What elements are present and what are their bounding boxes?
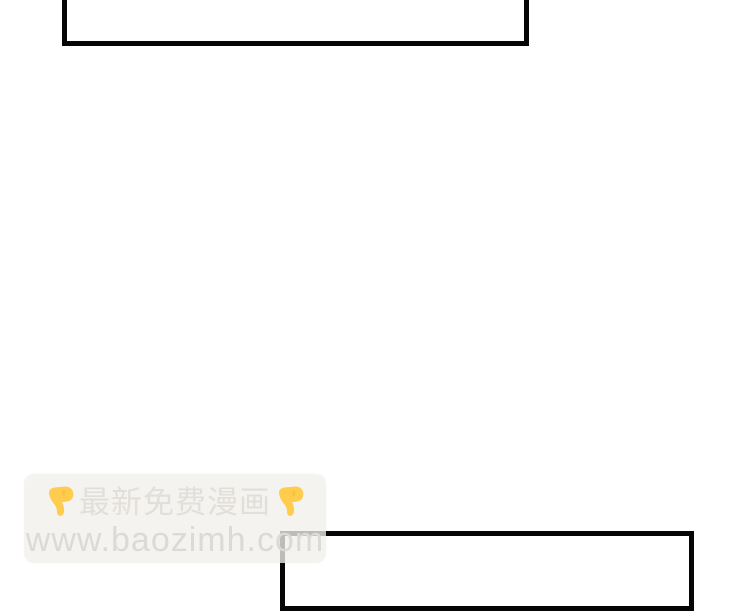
watermark-overlay: 最新免费漫画 www.baozimh.com [24,474,326,563]
watermark-url: www.baozimh.com [24,523,326,557]
watermark-line1: 最新免费漫画 [24,483,326,521]
watermark-text: 最新免费漫画 [79,487,271,518]
pointing-down-icon [274,484,306,520]
comic-panel-bottom [280,531,694,611]
pointing-down-icon [44,484,76,520]
comic-panel-top [62,0,529,46]
